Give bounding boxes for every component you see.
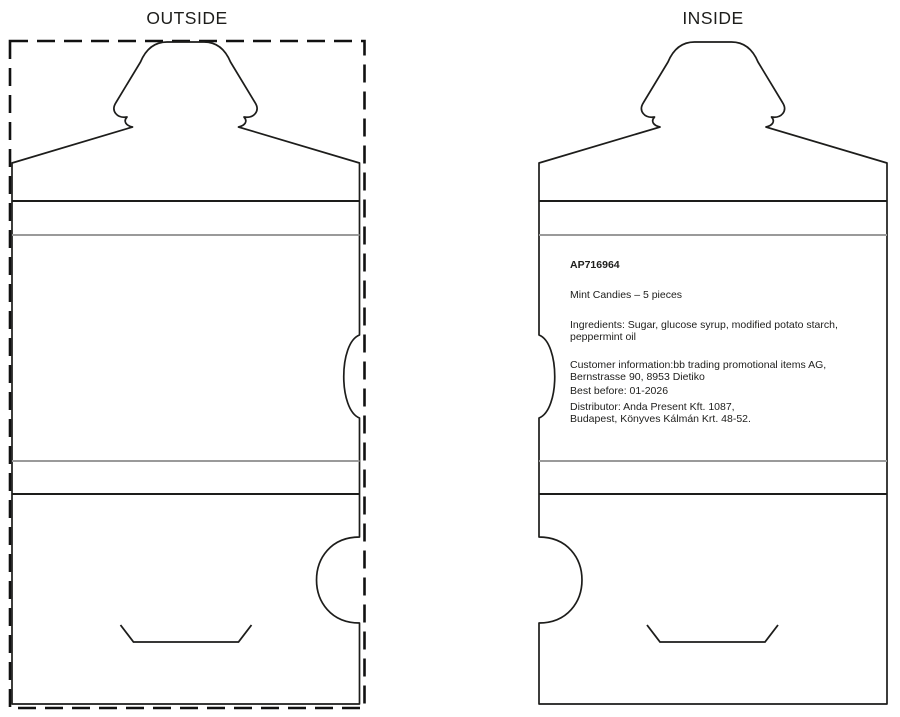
label-product-code: AP716964 [570,260,875,272]
label-ingredients-line2: peppermint oil [570,332,875,344]
label-distributor: Distributor: Anda Present Kft. 1087, Bud… [570,402,875,425]
label-distributor-line1: Distributor: Anda Present Kft. 1087, [570,402,875,414]
outside-dieline-outline [12,42,360,704]
label-product-name: Mint Candies – 5 pieces [570,290,875,302]
label-customer-line1: Customer information:bb trading promotio… [570,360,875,372]
dieline-sheet: OUTSIDE INSIDE AP716964 Mint Candies – 5… [0,0,900,717]
inside-tuck-slit [647,625,778,642]
label-distributor-line2: Budapest, Könyves Kálmán Krt. 48-52. [570,414,875,426]
label-ingredients: Ingredients: Sugar, glucose syrup, modif… [570,320,875,343]
label-best-before: Best before: 01-2026 [570,386,875,398]
outside-tuck-slit [121,625,252,642]
label-customer-line2: Bernstrasse 90, 8953 Dietiko [570,372,875,384]
outside-dashed-box [10,41,365,708]
label-customer-info: Customer information:bb trading promotio… [570,360,875,383]
label-ingredients-line1: Ingredients: Sugar, glucose syrup, modif… [570,320,875,332]
